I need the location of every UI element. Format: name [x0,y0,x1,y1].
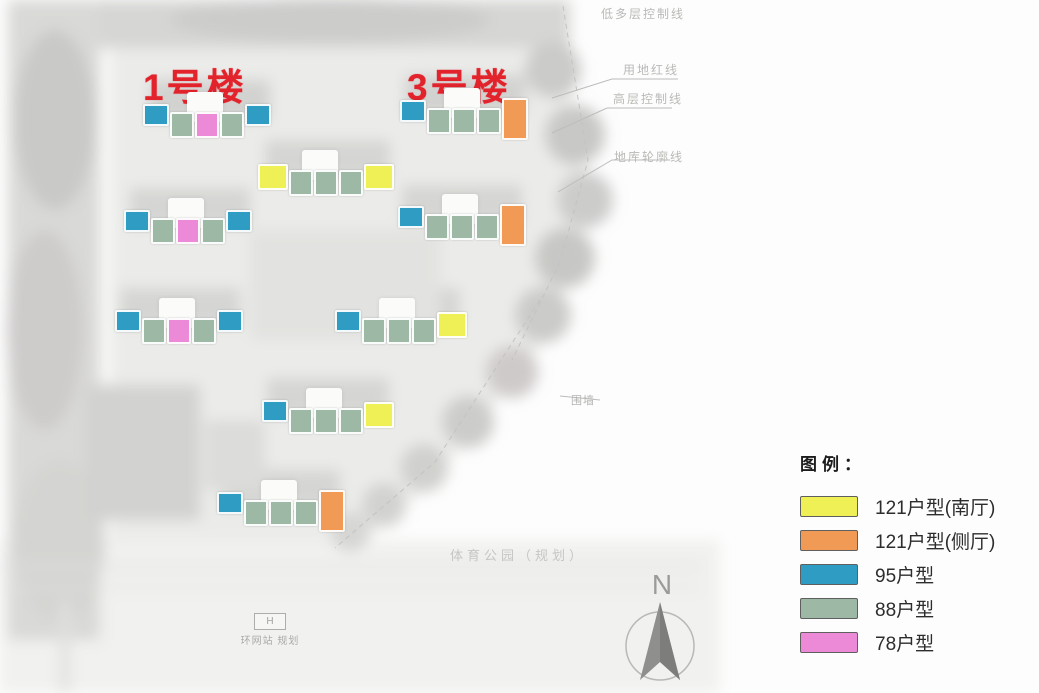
building-3 [400,100,529,140]
unit-block-88 [294,500,318,526]
legend-swatch-121s [800,496,858,517]
unit-block-88 [269,500,293,526]
legend-label-88: 88户型 [875,595,934,622]
utility-station: H 环网站 规划 [240,613,300,647]
unit-block-88 [412,318,436,344]
unit-block-88 [201,218,225,244]
legend-item-95: 95户型 [800,557,995,591]
unit-block-121c [502,98,528,140]
unit-block-121s [364,402,394,428]
legend: 图例： 121户型(南厅)121户型(侧厅)95户型88户型78户型 [800,450,995,659]
unit-block-88 [427,108,451,134]
plan-annotation-3: 高层控制线 [613,90,683,107]
unit-block-121c [500,204,526,246]
compass-n-label: N [652,569,672,600]
unit-block-95 [115,310,141,332]
unit-block-88 [362,318,386,344]
unit-block-88 [477,108,501,134]
unit-block-88 [142,318,166,344]
unit-block-95 [335,310,361,332]
legend-item-78: 78户型 [800,625,995,659]
unit-block-95 [245,104,271,126]
legend-rows: 121户型(南厅)121户型(侧厅)95户型88户型78户型 [800,489,995,659]
unit-block-121c [319,490,345,532]
unit-block-95 [143,104,169,126]
legend-label-78: 78户型 [875,629,934,656]
unit-block-88 [220,112,244,138]
plan-annotation-6: 体育公园（规划） [450,545,586,564]
building-row3-left [115,310,244,344]
building-row4-mid [262,400,395,434]
north-compass: N [612,566,712,693]
unit-block-95 [217,310,243,332]
legend-swatch-95 [800,564,858,585]
building-row2-right [398,206,527,246]
unit-block-88 [450,214,474,240]
building-row2-left [124,210,253,244]
unit-block-88 [244,500,268,526]
building-1 [143,104,272,138]
unit-block-121s [364,164,394,190]
unit-block-95 [398,206,424,228]
unit-block-95 [400,100,426,122]
unit-block-95 [124,210,150,232]
unit-block-78 [176,218,200,244]
unit-block-121s [258,164,288,190]
legend-swatch-121c [800,530,858,551]
unit-block-88 [192,318,216,344]
plan-annotation-4: 地库轮廓线 [614,148,684,165]
unit-block-88 [339,170,363,196]
unit-block-88 [289,170,313,196]
utility-station-caption: 环网站 规划 [240,632,300,647]
unit-block-88 [339,408,363,434]
legend-item-88: 88户型 [800,591,995,625]
unit-block-88 [289,408,313,434]
site-plan-image: 1号楼3号楼 低多层控制线用地红线高层控制线地库轮廓线围墙体育公园（规划） H … [0,0,1039,693]
building-row2-mid [258,162,395,196]
building-row5 [217,492,346,532]
unit-block-88 [151,218,175,244]
building-row3-right [335,310,468,344]
plan-annotation-1: 低多层控制线 [601,5,685,22]
legend-label-121c: 121户型(侧厅) [875,527,995,554]
unit-block-78 [195,112,219,138]
legend-label-95: 95户型 [875,561,934,588]
unit-block-88 [425,214,449,240]
legend-item-121s: 121户型(南厅) [800,489,995,523]
plan-annotation-2: 用地红线 [623,61,679,78]
unit-block-121s [437,312,467,338]
plan-annotation-5: 围墙 [571,392,595,408]
unit-block-88 [387,318,411,344]
unit-block-95 [226,210,252,232]
legend-swatch-88 [800,598,858,619]
unit-block-88 [475,214,499,240]
legend-title: 图例： [800,450,995,475]
unit-block-78 [167,318,191,344]
unit-block-88 [314,170,338,196]
legend-swatch-78 [800,632,858,653]
unit-block-88 [452,108,476,134]
unit-block-88 [170,112,194,138]
legend-label-121s: 121户型(南厅) [875,493,995,520]
legend-item-121c: 121户型(侧厅) [800,523,995,557]
unit-block-95 [262,400,288,422]
utility-station-box: H [254,613,286,630]
unit-block-88 [314,408,338,434]
unit-block-95 [217,492,243,514]
